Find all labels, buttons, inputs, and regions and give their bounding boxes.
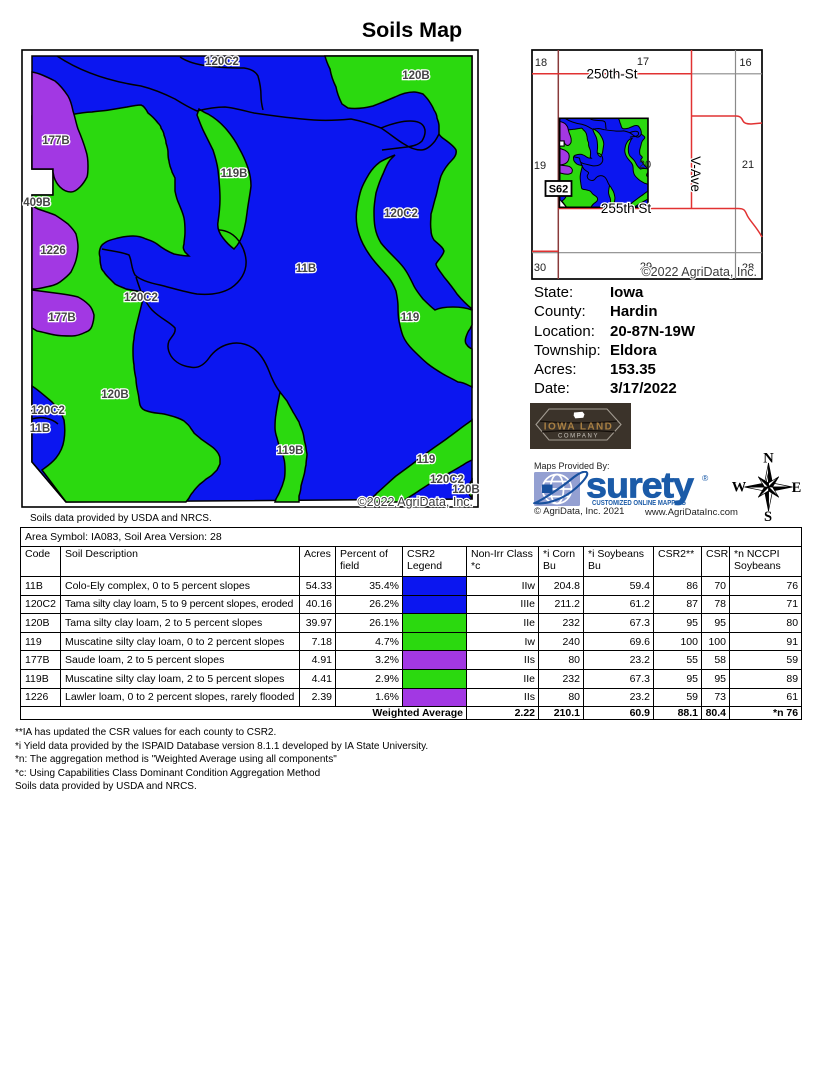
svg-text:©2022 AgriData, Inc.: ©2022 AgriData, Inc.: [357, 495, 473, 509]
svg-text:N: N: [763, 451, 774, 467]
svg-text:30: 30: [534, 262, 546, 274]
svg-text:119B: 119B: [221, 168, 248, 180]
svg-text:COMPANY: COMPANY: [558, 434, 599, 440]
svg-text:®: ®: [702, 473, 709, 483]
svg-text:1226: 1226: [40, 245, 66, 257]
svg-text:119: 119: [417, 454, 436, 466]
svg-text:250th-St: 250th-St: [586, 67, 637, 82]
svg-text:11B: 11B: [296, 263, 316, 275]
svg-text:S: S: [764, 509, 772, 525]
svg-text:119: 119: [401, 312, 420, 324]
svg-text:S62: S62: [549, 184, 569, 196]
svg-text:W: W: [732, 480, 747, 496]
svg-text:IOWA LAND: IOWA LAND: [544, 422, 613, 433]
svg-text:V-Ave: V-Ave: [688, 156, 703, 192]
svg-text:177B: 177B: [48, 312, 76, 324]
svg-text:120C2: 120C2: [31, 405, 65, 417]
svg-text:©2022 AgriData, Inc.: ©2022 AgriData, Inc.: [641, 265, 757, 279]
svg-text:120B: 120B: [402, 70, 430, 82]
svg-text:E: E: [792, 480, 802, 496]
svg-text:17: 17: [637, 56, 649, 68]
svg-text:120C2: 120C2: [384, 208, 418, 220]
svg-text:20: 20: [639, 159, 651, 171]
svg-text:16: 16: [739, 57, 751, 69]
svg-text:255th St: 255th St: [601, 201, 652, 216]
svg-text:120C2: 120C2: [205, 56, 239, 68]
svg-text:19: 19: [534, 160, 546, 172]
svg-text:177B: 177B: [42, 135, 70, 147]
svg-text:119B: 119B: [277, 445, 304, 457]
svg-text:120C2: 120C2: [124, 292, 158, 304]
svg-text:11B: 11B: [30, 423, 50, 435]
svg-text:409B: 409B: [23, 197, 51, 209]
svg-text:120B: 120B: [101, 389, 129, 401]
svg-text:18: 18: [535, 57, 547, 69]
svg-text:21: 21: [742, 159, 754, 171]
